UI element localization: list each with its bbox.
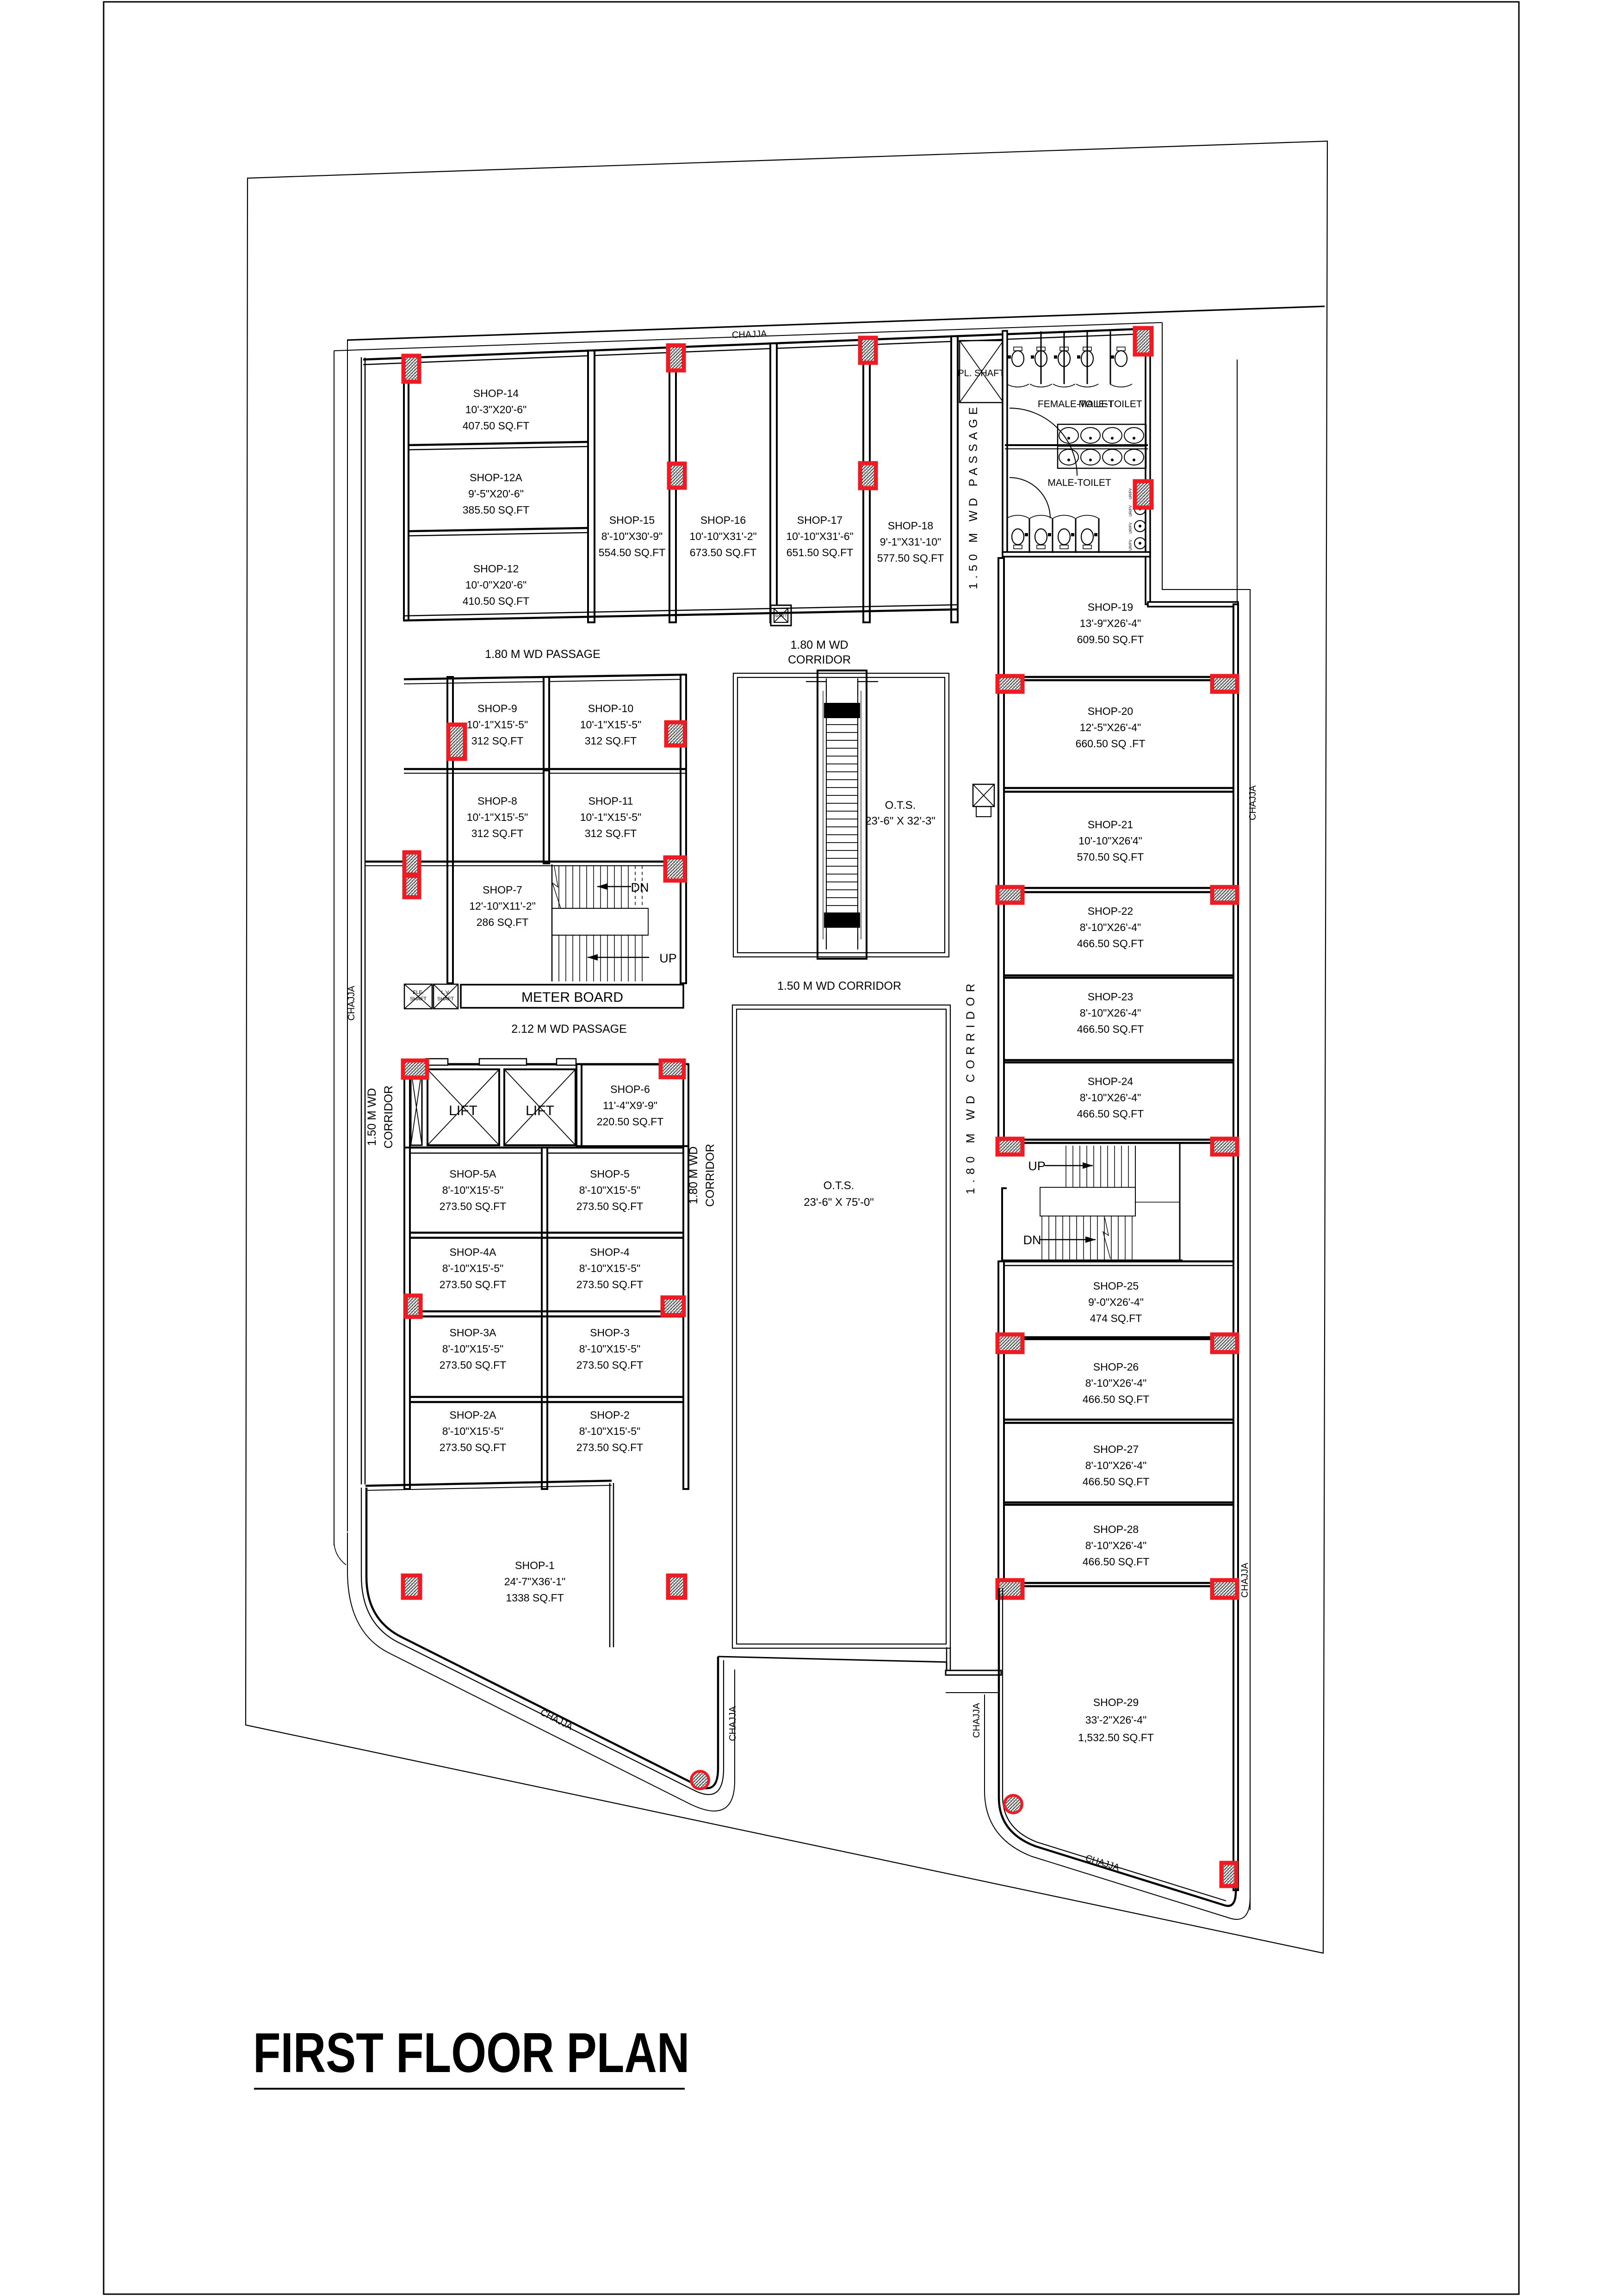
svg-text:8'-10"X15'-5": 8'-10"X15'-5" <box>579 1425 641 1437</box>
svg-text:24'-7"X36'-1": 24'-7"X36'-1" <box>504 1576 566 1588</box>
svg-text:466.50 SQ.FT: 466.50 SQ.FT <box>1077 1108 1144 1120</box>
svg-text:312 SQ.FT: 312 SQ.FT <box>585 735 637 747</box>
svg-text:SHOP-29: SHOP-29 <box>1093 1696 1139 1708</box>
svg-text:DN: DN <box>1023 1233 1041 1247</box>
svg-text:1.80 M WD CORRIDOR: 1.80 M WD CORRIDOR <box>964 979 977 1194</box>
svg-text:SHOP-16: SHOP-16 <box>700 514 746 526</box>
svg-text:SHAFT: SHAFT <box>410 996 427 1002</box>
svg-text:10'-0"X20'-6": 10'-0"X20'-6" <box>465 579 527 591</box>
svg-text:1.80 M WD PASSAGE: 1.80 M WD PASSAGE <box>485 648 601 661</box>
svg-text:SHOP-25: SHOP-25 <box>1093 1280 1139 1292</box>
svg-text:8'-10"X15'-5": 8'-10"X15'-5" <box>442 1343 504 1355</box>
svg-text:466.50 SQ.FT: 466.50 SQ.FT <box>1077 1023 1144 1035</box>
svg-text:LIFT: LIFT <box>449 1103 477 1118</box>
svg-text:SHOP-9: SHOP-9 <box>477 702 517 714</box>
svg-text:SHOP-2A: SHOP-2A <box>450 1409 497 1421</box>
svg-text:8'-10"X15'-5": 8'-10"X15'-5" <box>442 1184 504 1196</box>
svg-text:SHOP-8: SHOP-8 <box>477 795 517 807</box>
svg-text:1.80 M WD: 1.80 M WD <box>790 639 848 652</box>
svg-text:10'-3"X20'-6": 10'-3"X20'-6" <box>465 403 527 416</box>
svg-text:466.50 SQ.FT: 466.50 SQ.FT <box>1083 1393 1149 1405</box>
svg-text:METER BOARD: METER BOARD <box>521 990 623 1005</box>
svg-text:474 SQ.FT: 474 SQ.FT <box>1090 1312 1142 1324</box>
svg-text:CHAJJA: CHAJJA <box>732 329 768 340</box>
svg-text:UP: UP <box>659 951 677 965</box>
svg-text:273.50 SQ.FT: 273.50 SQ.FT <box>576 1359 643 1371</box>
svg-text:10'-1"X15'-5": 10'-1"X15'-5" <box>467 811 528 823</box>
svg-text:312 SQ.FT: 312 SQ.FT <box>471 827 523 839</box>
svg-text:23'-6" X 32'-3": 23'-6" X 32'-3" <box>865 815 935 827</box>
svg-text:UR/FV: UR/FV <box>1128 522 1133 534</box>
svg-text:UP: UP <box>1028 1159 1046 1173</box>
svg-text:286 SQ.FT: 286 SQ.FT <box>477 916 528 928</box>
svg-text:CHAJJA: CHAJJA <box>972 1703 982 1738</box>
svg-text:SHOP-24: SHOP-24 <box>1088 1075 1134 1087</box>
svg-text:385.50 SQ.FT: 385.50 SQ.FT <box>463 504 529 516</box>
svg-text:312 SQ.FT: 312 SQ.FT <box>585 827 637 839</box>
svg-text:10'-10"X26'4": 10'-10"X26'4" <box>1078 835 1142 847</box>
svg-text:8'-10"X15'-5": 8'-10"X15'-5" <box>579 1184 641 1196</box>
svg-text:273.50 SQ.FT: 273.50 SQ.FT <box>440 1441 506 1453</box>
svg-text:1.50 M WD: 1.50 M WD <box>365 1088 378 1146</box>
svg-text:220.50 SQ.FT: 220.50 SQ.FT <box>597 1116 663 1128</box>
svg-text:SHOP-3: SHOP-3 <box>590 1327 630 1339</box>
svg-text:23'-6" X 75'-0": 23'-6" X 75'-0" <box>804 1196 874 1209</box>
svg-text:8'-10"X15'-5": 8'-10"X15'-5" <box>442 1425 504 1437</box>
svg-text:554.50 SQ.FT: 554.50 SQ.FT <box>599 546 665 558</box>
svg-text:673.50 SQ.FT: 673.50 SQ.FT <box>690 546 756 558</box>
svg-text:407.50 SQ.FT: 407.50 SQ.FT <box>463 420 529 432</box>
svg-text:SHOP-3A: SHOP-3A <box>450 1327 497 1339</box>
svg-text:FIRST FLOOR PLAN: FIRST FLOOR PLAN <box>253 2022 689 2085</box>
svg-text:1.50 M WD CORRIDOR: 1.50 M WD CORRIDOR <box>777 980 901 993</box>
svg-text:273.50 SQ.FT: 273.50 SQ.FT <box>576 1441 643 1453</box>
svg-text:DN: DN <box>631 881 649 894</box>
svg-text:466.50 SQ.FT: 466.50 SQ.FT <box>1083 1556 1149 1568</box>
svg-text:10'-1"X15'-5": 10'-1"X15'-5" <box>467 719 528 731</box>
svg-text:SHAFT: SHAFT <box>437 996 454 1002</box>
svg-text:312 SQ.FT: 312 SQ.FT <box>471 735 523 747</box>
svg-text:660.50 SQ .FT: 660.50 SQ .FT <box>1076 738 1146 750</box>
svg-text:SHOP-28: SHOP-28 <box>1093 1523 1139 1535</box>
svg-text:SHOP-17: SHOP-17 <box>797 514 842 526</box>
svg-text:ELE.: ELE. <box>413 990 424 995</box>
svg-text:SHOP-4A: SHOP-4A <box>450 1246 497 1258</box>
svg-text:SHOP-18: SHOP-18 <box>888 520 933 532</box>
svg-text:SHOP-26: SHOP-26 <box>1093 1361 1139 1373</box>
svg-text:SHOP-10: SHOP-10 <box>588 702 633 714</box>
svg-text:SHOP-1: SHOP-1 <box>515 1559 555 1571</box>
svg-text:CORRIDOR: CORRIDOR <box>382 1086 395 1148</box>
svg-text:8'-10"X26'-4": 8'-10"X26'-4" <box>1085 1459 1147 1471</box>
svg-text:8'-10"X15'-5": 8'-10"X15'-5" <box>442 1262 504 1274</box>
svg-text:8'-10"X26'-4": 8'-10"X26'-4" <box>1085 1377 1147 1389</box>
svg-text:651.50 SQ.FT: 651.50 SQ.FT <box>787 546 853 558</box>
svg-text:2.12 M WD PASSAGE: 2.12 M WD PASSAGE <box>511 1023 627 1036</box>
svg-text:SHOP-5: SHOP-5 <box>590 1168 630 1180</box>
svg-text:8'-10"X26'-4": 8'-10"X26'-4" <box>1080 1092 1141 1104</box>
svg-text:1.80 M WD: 1.80 M WD <box>687 1146 700 1204</box>
svg-text:MALE-TOILET: MALE-TOILET <box>1078 399 1142 410</box>
svg-text:8'-10"X15'-5": 8'-10"X15'-5" <box>579 1262 641 1274</box>
svg-text:UR/FV: UR/FV <box>1128 488 1133 499</box>
svg-text:273.50 SQ.FT: 273.50 SQ.FT <box>440 1359 506 1371</box>
svg-text:SHAFT: SHAFT <box>775 614 787 618</box>
svg-text:CHAJJA: CHAJJA <box>1248 785 1258 820</box>
svg-text:11'-4"X9'-9": 11'-4"X9'-9" <box>603 1099 657 1111</box>
svg-text:273.50 SQ.FT: 273.50 SQ.FT <box>440 1200 506 1212</box>
svg-text:SHOP-23: SHOP-23 <box>1088 991 1133 1003</box>
svg-text:8'-10"X26'-4": 8'-10"X26'-4" <box>1085 1539 1147 1551</box>
svg-text:UR/FV: UR/FV <box>1128 505 1133 516</box>
svg-text:SHOP-12A: SHOP-12A <box>470 472 522 484</box>
svg-text:O.T.S.: O.T.S. <box>885 799 916 812</box>
svg-text:O.T.S.: O.T.S. <box>824 1179 855 1192</box>
svg-text:SHOP-4: SHOP-4 <box>590 1246 630 1258</box>
svg-text:CHAJJA: CHAJJA <box>728 1706 738 1741</box>
svg-text:33'-2"X26'-4": 33'-2"X26'-4" <box>1085 1714 1147 1726</box>
svg-text:LIFT: LIFT <box>526 1103 554 1118</box>
svg-text:9'-5"X20'-6": 9'-5"X20'-6" <box>468 488 524 500</box>
svg-text:MALE-TOILET: MALE-TOILET <box>1047 478 1111 488</box>
svg-text:PL. SHAFT: PL. SHAFT <box>958 368 1004 379</box>
svg-text:SHOP-5A: SHOP-5A <box>450 1168 497 1180</box>
svg-text:SHOP-6: SHOP-6 <box>610 1083 650 1095</box>
svg-text:12'-10"X11'-2": 12'-10"X11'-2" <box>469 900 536 912</box>
svg-text:SHOP-11: SHOP-11 <box>588 795 633 807</box>
svg-text:1.50 M WD PASSAGE: 1.50 M WD PASSAGE <box>967 403 980 590</box>
svg-text:SHOP-15: SHOP-15 <box>609 514 655 526</box>
svg-text:SHOP-20: SHOP-20 <box>1088 705 1133 717</box>
svg-text:L.V.: L.V. <box>441 990 450 995</box>
svg-text:10'-1"X15'-5": 10'-1"X15'-5" <box>580 719 642 731</box>
svg-text:SHOP-21: SHOP-21 <box>1088 819 1133 831</box>
svg-text:570.50 SQ.FT: 570.50 SQ.FT <box>1077 851 1144 863</box>
svg-text:SHOP-19: SHOP-19 <box>1088 601 1133 613</box>
svg-text:UR/FV: UR/FV <box>1128 539 1133 551</box>
svg-text:SHOP-14: SHOP-14 <box>473 387 519 399</box>
svg-text:8'-10"X26'-4": 8'-10"X26'-4" <box>1080 921 1141 933</box>
svg-text:SHOP-7: SHOP-7 <box>483 884 522 896</box>
svg-text:8'-10"X26'-4": 8'-10"X26'-4" <box>1080 1007 1141 1019</box>
svg-text:577.50 SQ.FT: 577.50 SQ.FT <box>877 552 944 564</box>
svg-text:273.50 SQ.FT: 273.50 SQ.FT <box>576 1278 643 1291</box>
svg-text:SHOP-22: SHOP-22 <box>1088 905 1133 917</box>
svg-text:CHAJJA: CHAJJA <box>347 986 357 1021</box>
svg-text:9'-0"X26'-4": 9'-0"X26'-4" <box>1088 1296 1144 1308</box>
svg-text:10'-10"X31'-2": 10'-10"X31'-2" <box>689 530 756 542</box>
svg-text:10'-10"X31'-6": 10'-10"X31'-6" <box>786 530 853 542</box>
svg-text:273.50 SQ.FT: 273.50 SQ.FT <box>440 1278 506 1291</box>
svg-text:609.50 SQ.FT: 609.50 SQ.FT <box>1077 633 1144 645</box>
svg-text:9'-1"X31'-10": 9'-1"X31'-10" <box>880 536 942 548</box>
svg-text:SHOP-27: SHOP-27 <box>1093 1443 1139 1455</box>
svg-text:CORRIDOR: CORRIDOR <box>788 653 851 666</box>
svg-text:12'-5"X26'-4": 12'-5"X26'-4" <box>1080 721 1141 733</box>
svg-text:8'-10"X30'-9": 8'-10"X30'-9" <box>601 530 663 542</box>
svg-text:13'-9"X26'-4": 13'-9"X26'-4" <box>1080 617 1141 629</box>
svg-text:466.50 SQ.FT: 466.50 SQ.FT <box>1077 937 1144 949</box>
svg-text:410.50 SQ.FT: 410.50 SQ.FT <box>463 595 529 607</box>
svg-text:1338 SQ.FT: 1338 SQ.FT <box>506 1592 564 1604</box>
svg-text:SHOP-12: SHOP-12 <box>473 563 519 575</box>
svg-text:10'-1"X15'-5": 10'-1"X15'-5" <box>580 811 642 823</box>
svg-text:SHOP-2: SHOP-2 <box>590 1409 630 1421</box>
svg-text:1,532.50 SQ.FT: 1,532.50 SQ.FT <box>1078 1731 1154 1744</box>
svg-text:466.50 SQ.FT: 466.50 SQ.FT <box>1083 1476 1149 1488</box>
svg-text:CORRIDOR: CORRIDOR <box>704 1144 717 1207</box>
svg-text:CHAJJA: CHAJJA <box>1240 1563 1250 1598</box>
svg-text:8'-10"X15'-5": 8'-10"X15'-5" <box>579 1343 641 1355</box>
svg-text:273.50 SQ.FT: 273.50 SQ.FT <box>576 1200 643 1212</box>
